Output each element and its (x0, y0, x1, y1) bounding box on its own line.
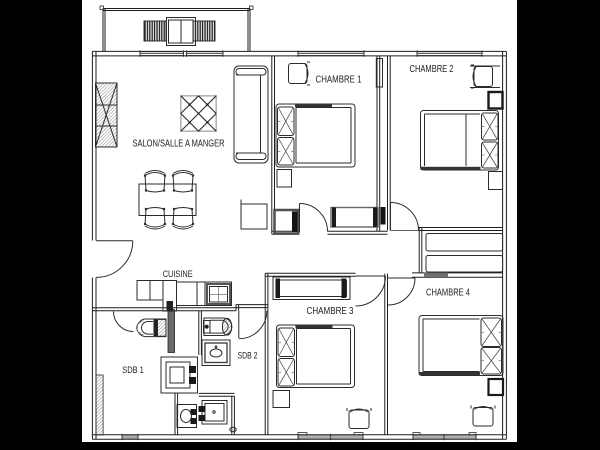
svg-text:CHAMBRE 3: CHAMBRE 3 (307, 306, 354, 317)
svg-text:CHAMBRE 1: CHAMBRE 1 (316, 75, 362, 86)
svg-text:CHAMBRE 4: CHAMBRE 4 (426, 288, 470, 299)
svg-text:CUISINE: CUISINE (163, 269, 193, 279)
svg-text:SALON/SALLE A MANGER: SALON/SALLE A MANGER (133, 139, 225, 150)
svg-text:CHAMBRE 2: CHAMBRE 2 (410, 64, 454, 75)
svg-text:SDB 2: SDB 2 (238, 351, 258, 361)
svg-text:SDB 1: SDB 1 (122, 365, 144, 375)
